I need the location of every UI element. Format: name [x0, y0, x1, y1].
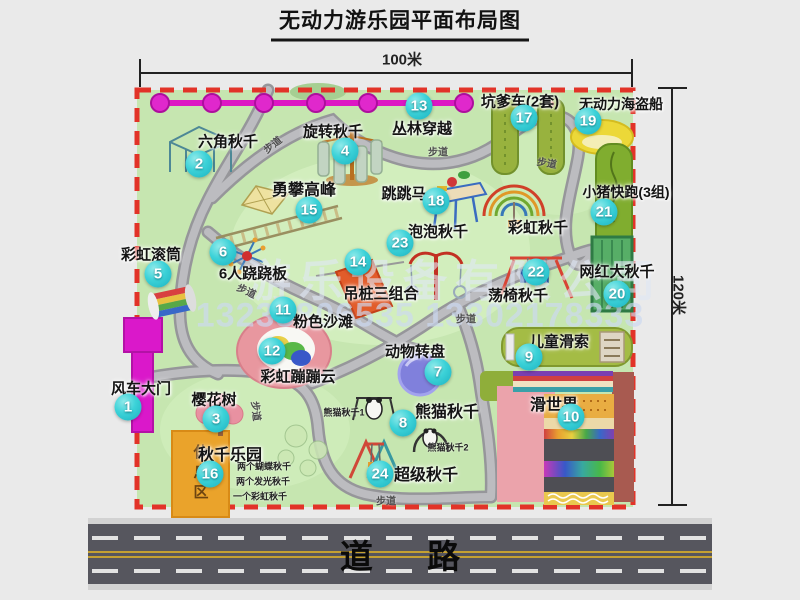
attraction-sublabel-16-1: 两个蝴蝶秋千 [237, 460, 291, 473]
attraction-label-13: 丛林穿越 [392, 118, 452, 139]
attraction-badge-3: 3 [203, 406, 230, 433]
attraction-label-12: 彩虹蹦蹦云 [260, 366, 335, 387]
attraction-badge-18: 18 [423, 188, 450, 215]
attraction-badge-15: 15 [296, 197, 323, 224]
attraction-badge-19: 19 [575, 108, 602, 135]
attraction-label-6: 6人跷跷板 [219, 263, 287, 284]
attraction-badge-20: 20 [604, 281, 631, 308]
road-label: 道 路 [340, 530, 472, 578]
attraction-label-24: 超级秋千 [394, 461, 458, 485]
attraction-label-21: 小猪快跑(3组) [582, 182, 669, 202]
screenshot-root: 无动力游乐园平面布局图 100米 120米 游乐设备有限公司 132338065… [0, 0, 800, 600]
attraction-label-18: 跳跳马 [381, 183, 426, 204]
attraction-badge-8: 8 [390, 410, 417, 437]
attraction-badge-14: 14 [345, 249, 372, 276]
attraction-badge-11: 11 [270, 297, 297, 324]
attraction-label-14: 吊桩三组合 [343, 283, 418, 304]
attraction-label-11: 粉色沙滩 [293, 311, 353, 332]
attraction-badge-5: 5 [145, 261, 172, 288]
attraction-badge-21: 21 [591, 199, 618, 226]
right-scale-label: 120米 [669, 275, 690, 315]
attraction-badge-23: 23 [387, 230, 414, 257]
attraction-label-2: 六角秋千 [198, 131, 258, 152]
attraction-sublabel-16-2: 两个发光秋千 [236, 475, 290, 488]
walkway-label-5: 步道 [456, 311, 476, 326]
attraction-badge-4: 4 [332, 138, 359, 165]
walkway-label-3: 步道 [536, 153, 558, 171]
attraction-badge-24: 24 [367, 461, 394, 488]
attraction-label-4: 旋转秋千 [303, 121, 363, 142]
attraction-sublabel-8-2: 熊猫秋千2 [427, 441, 468, 454]
top-scale-label: 100米 [382, 49, 422, 70]
attraction-badge-22: 22 [523, 259, 550, 286]
attraction-badge-10: 10 [558, 404, 585, 431]
attraction-label-rainbow-swing: 彩虹秋千 [508, 217, 568, 238]
attraction-badge-17: 17 [511, 105, 538, 132]
attraction-label-20: 网红大秋千 [579, 261, 654, 282]
walkway-label-2: 步道 [428, 144, 448, 159]
attraction-badge-6: 6 [210, 239, 237, 266]
attraction-badge-13: 13 [406, 93, 433, 120]
attraction-label-22: 荡椅秋千 [488, 285, 548, 306]
attraction-label-8: 熊猫秋千 [415, 398, 479, 422]
attraction-badge-7: 7 [425, 359, 452, 386]
attraction-label-23: 泡泡秋千 [408, 221, 468, 242]
attraction-sublabel-16-3: 一个彩虹秋千 [233, 490, 287, 503]
walkway-label-6: 步道 [248, 400, 265, 422]
attraction-sublabel-8-1: 熊猫秋千1 [323, 406, 364, 419]
walkway-label-7: 步道 [376, 493, 396, 508]
attraction-badge-1: 1 [115, 394, 142, 421]
attraction-badge-12: 12 [259, 338, 286, 365]
attraction-badge-16: 16 [197, 461, 224, 488]
page-title: 无动力游乐园平面布局图 [271, 5, 529, 42]
attraction-badge-9: 9 [516, 344, 543, 371]
attraction-badge-2: 2 [186, 151, 213, 178]
